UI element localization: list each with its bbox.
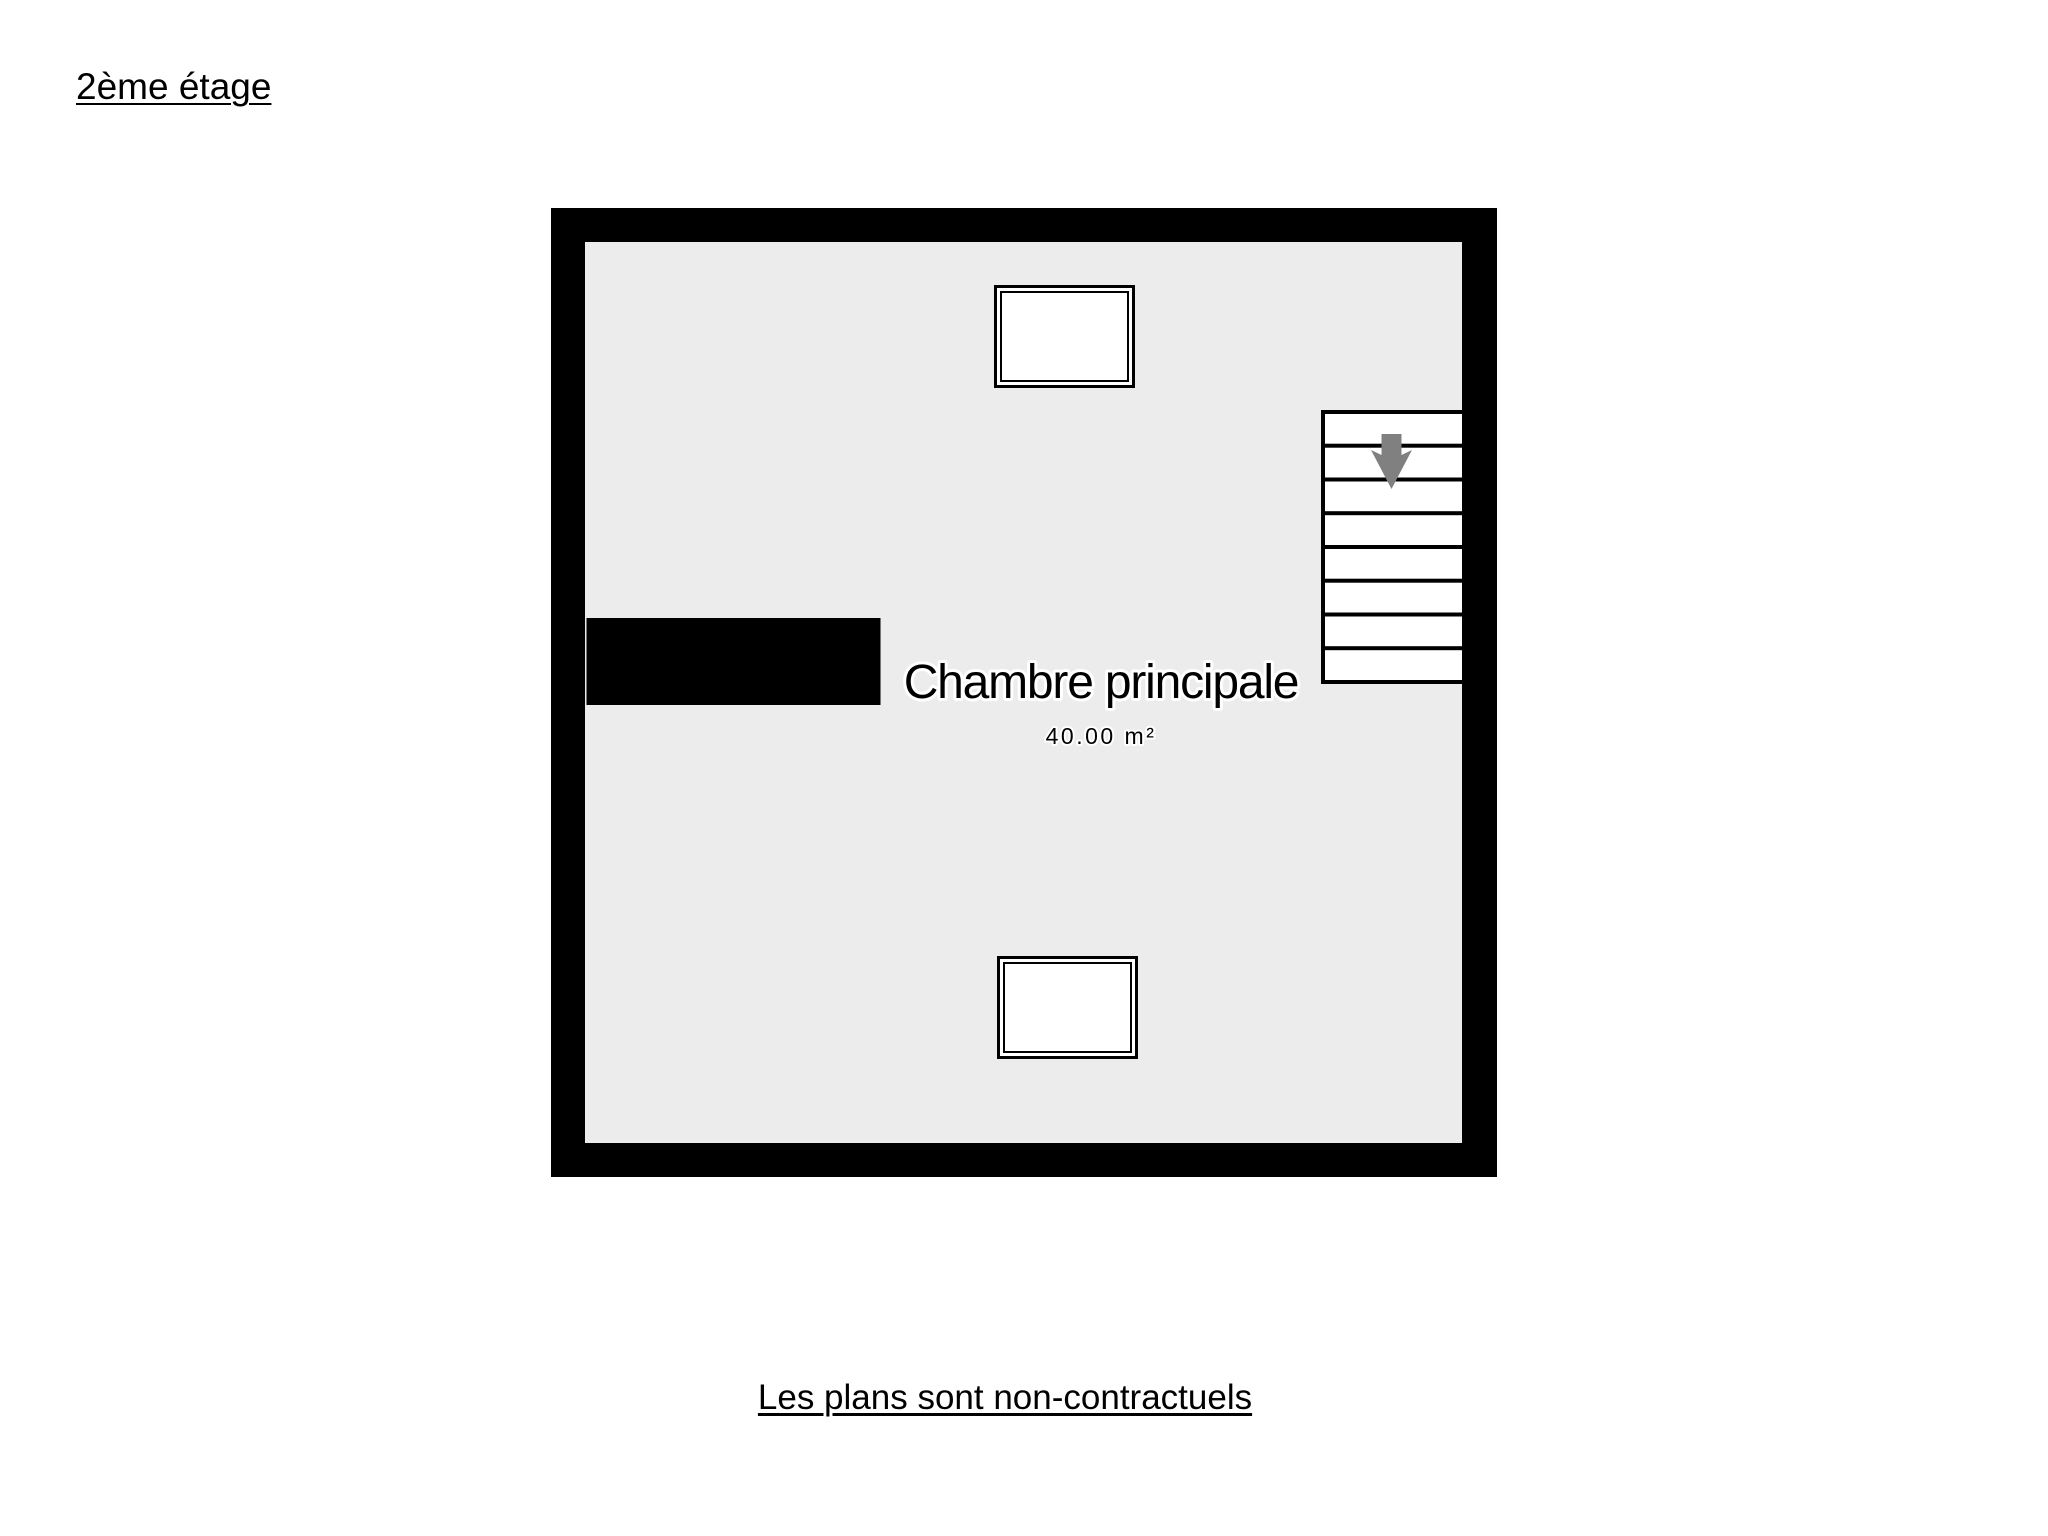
svg-text:Chambre principale: Chambre principale xyxy=(904,656,1299,709)
svg-text:40.00 m²: 40.00 m² xyxy=(1046,723,1157,749)
